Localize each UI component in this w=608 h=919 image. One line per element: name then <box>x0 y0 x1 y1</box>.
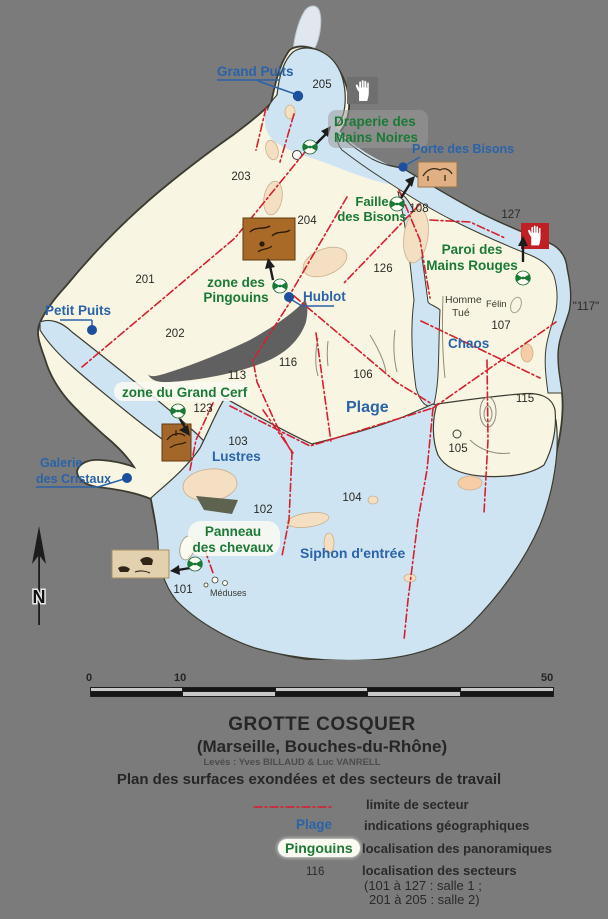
pano-marker-chevaux <box>187 557 202 571</box>
label-homme-line2: Tué <box>452 307 470 319</box>
sector-204: 204 <box>297 215 317 227</box>
label-chevaux-line2: des chevaux <box>192 540 274 555</box>
label-siphon: Siphon d'entrée <box>300 545 405 561</box>
sector-201: 201 <box>135 274 154 286</box>
scale-bar <box>90 687 554 697</box>
label-pingouins-line2: Pingouins <box>203 290 268 305</box>
legend-limit-label: limite de secteur <box>366 797 469 812</box>
map-subtitle: (Marseille, Bouches-du-Rhône) <box>0 737 608 757</box>
map-title: GROTTE COSQUER <box>0 714 608 736</box>
legend-geo-label: indications géographiques <box>364 818 529 833</box>
label-draperie-line1: Draperie des <box>334 114 416 129</box>
black-hands-icon <box>347 77 378 104</box>
scale-tick-0: 0 <box>86 672 92 684</box>
sector-104: 104 <box>342 492 362 504</box>
label-meduses: Méduses <box>210 588 247 598</box>
sector-113: 113 <box>228 370 246 382</box>
label-grand-cerf: zone du Grand Cerf <box>122 385 248 400</box>
sector-115: 115 <box>516 393 534 405</box>
sector-127: 127 <box>501 209 520 221</box>
sector-117: "117" <box>573 301 600 313</box>
legend-pano-sample: Pingouins <box>278 839 360 857</box>
label-draperie-line2: Mains Noires <box>334 130 418 145</box>
sector-126: 126 <box>373 263 392 275</box>
map-plan-caption: Plan des surfaces exondées et des secteu… <box>0 771 608 788</box>
pano-marker-pingouins <box>272 279 287 293</box>
sector-202: 202 <box>165 328 184 340</box>
sector-106: 106 <box>353 369 372 381</box>
legend-limit-sample <box>252 803 334 811</box>
pano-marker-grand-cerf <box>170 404 185 418</box>
label-pingouins-line1: zone des <box>207 275 265 290</box>
label-galerie-line2: des Cristaux <box>36 472 111 486</box>
label-petit-puits: Petit Puits <box>45 303 111 318</box>
sector-123: 123 <box>193 403 212 415</box>
label-chevaux-line1: Panneau <box>205 524 261 539</box>
legend-sector-label: localisation des secteurs <box>362 863 517 878</box>
sector-102: 102 <box>253 504 272 516</box>
legend-sector-sample: 116 <box>306 866 324 878</box>
sector-107: 107 <box>491 320 510 332</box>
penguin-panel-image <box>243 218 295 260</box>
label-plage: Plage <box>346 399 389 416</box>
sector-105: 105 <box>448 443 467 455</box>
scale-tick-10: 10 <box>174 672 186 684</box>
legend-sector-note2: 201 à 205 : salle 2) <box>369 892 480 907</box>
island-105-115 <box>433 394 555 477</box>
label-paroi-line1: Paroi des <box>442 242 503 257</box>
sector-108: 108 <box>409 203 428 215</box>
label-porte-des-bisons: Porte des Bisons <box>412 142 514 156</box>
label-lustres: Lustres <box>212 449 261 464</box>
label-homme-line1: Homme <box>445 294 482 306</box>
sector-101: 101 <box>173 584 192 596</box>
scale-tick-50: 50 <box>541 672 553 684</box>
label-faille-line2: des Bisons <box>337 209 406 224</box>
pano-marker-paroi <box>515 271 530 285</box>
sector-203: 203 <box>231 171 250 183</box>
legend-pano-label: localisation des panoramiques <box>362 841 552 856</box>
legend-sector-note1: (101 à 127 : salle 1 ; <box>364 878 482 893</box>
sector-205: 205 <box>312 79 331 91</box>
sector-116: 116 <box>279 357 297 369</box>
label-felin: Félin <box>486 299 507 310</box>
legend-geo-sample: Plage <box>296 817 332 832</box>
label-chaos: Chaos <box>448 336 489 351</box>
label-hublot: Hublot <box>303 289 346 304</box>
pano-marker-draperie <box>302 140 317 154</box>
north-label: N <box>33 587 46 607</box>
horses-panel-image <box>112 550 169 578</box>
label-faille-line1: Faille <box>355 194 388 209</box>
label-grand-puits: Grand Puits <box>217 64 294 79</box>
cave-plan-svg: 205 203 204 201 202 108 127 126 107 "117… <box>0 0 608 660</box>
label-galerie-line1: Galerie <box>40 456 82 470</box>
bison-panel-image <box>418 162 457 187</box>
map-credits: Levés : Yves BILLAUD & Luc VANRELL <box>0 757 584 768</box>
sector-103: 103 <box>228 436 247 448</box>
label-paroi-line2: Mains Rouges <box>426 258 518 273</box>
cosquer-cave-map-page: 205 203 204 201 202 108 127 126 107 "117… <box>0 0 608 919</box>
